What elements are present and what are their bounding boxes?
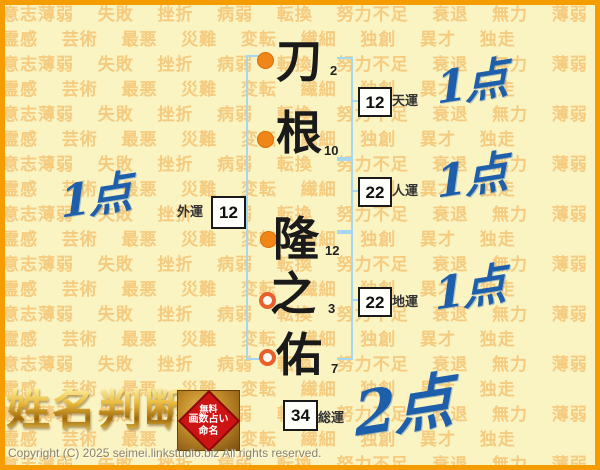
char-marker	[257, 131, 274, 148]
earth-luck-value: 22	[358, 287, 392, 317]
person-luck-score: 1点	[435, 150, 507, 205]
total-luck-score: 2点	[353, 370, 453, 446]
name-character: 根	[276, 110, 322, 156]
person-luck-value: 22	[358, 177, 392, 207]
name-character: 隆	[273, 216, 319, 262]
seal-line3: 命名	[199, 426, 219, 438]
name-character: 佑	[276, 332, 322, 378]
char-marker	[259, 349, 276, 366]
seimei-handan-result-page: 意志薄弱 失敗 挫折 病弱 転換 努力不足 衰退 無力 薄弱 霊感 芸術 最悪 …	[0, 0, 600, 470]
free-naming-seal[interactable]: 無料 画数占い 命名	[177, 390, 240, 451]
total-luck-value: 34	[283, 400, 318, 431]
earth-box-connector	[351, 299, 358, 301]
heaven-luck-bracket	[337, 57, 353, 159]
stroke-count: 7	[331, 362, 338, 375]
person-luck-bracket	[337, 159, 353, 232]
stroke-count: 3	[328, 302, 335, 315]
person-luck-label: 人運	[392, 184, 418, 197]
heaven-luck-value: 12	[358, 87, 392, 117]
earth-luck-label: 地運	[392, 295, 418, 308]
stroke-count: 2	[330, 64, 337, 77]
heaven-luck-score: 1点	[435, 56, 507, 111]
char-marker	[257, 52, 274, 69]
stroke-count: 12	[325, 244, 339, 257]
outer-luck-label: 外運	[177, 205, 203, 218]
heaven-box-connector	[351, 100, 358, 102]
outer-luck-value: 12	[211, 196, 246, 229]
heaven-luck-label: 天運	[392, 94, 418, 107]
stroke-count: 10	[324, 144, 338, 157]
outer-luck-score: 1点	[59, 170, 131, 225]
site-logo[interactable]: 姓名判断	[6, 388, 190, 432]
seal-line2: 画数占い	[189, 414, 229, 426]
outer-luck-bracket	[246, 55, 262, 360]
name-character: 刀	[276, 38, 322, 84]
name-character: 之	[270, 271, 316, 317]
total-luck-label: 総運	[318, 411, 344, 424]
person-box-connector	[351, 190, 358, 192]
seal-line1: 無料	[199, 404, 217, 414]
earth-luck-score: 1点	[433, 262, 505, 317]
copyright-text: Copyright (C) 2025 seimei.linkstudio.biz…	[8, 446, 321, 460]
